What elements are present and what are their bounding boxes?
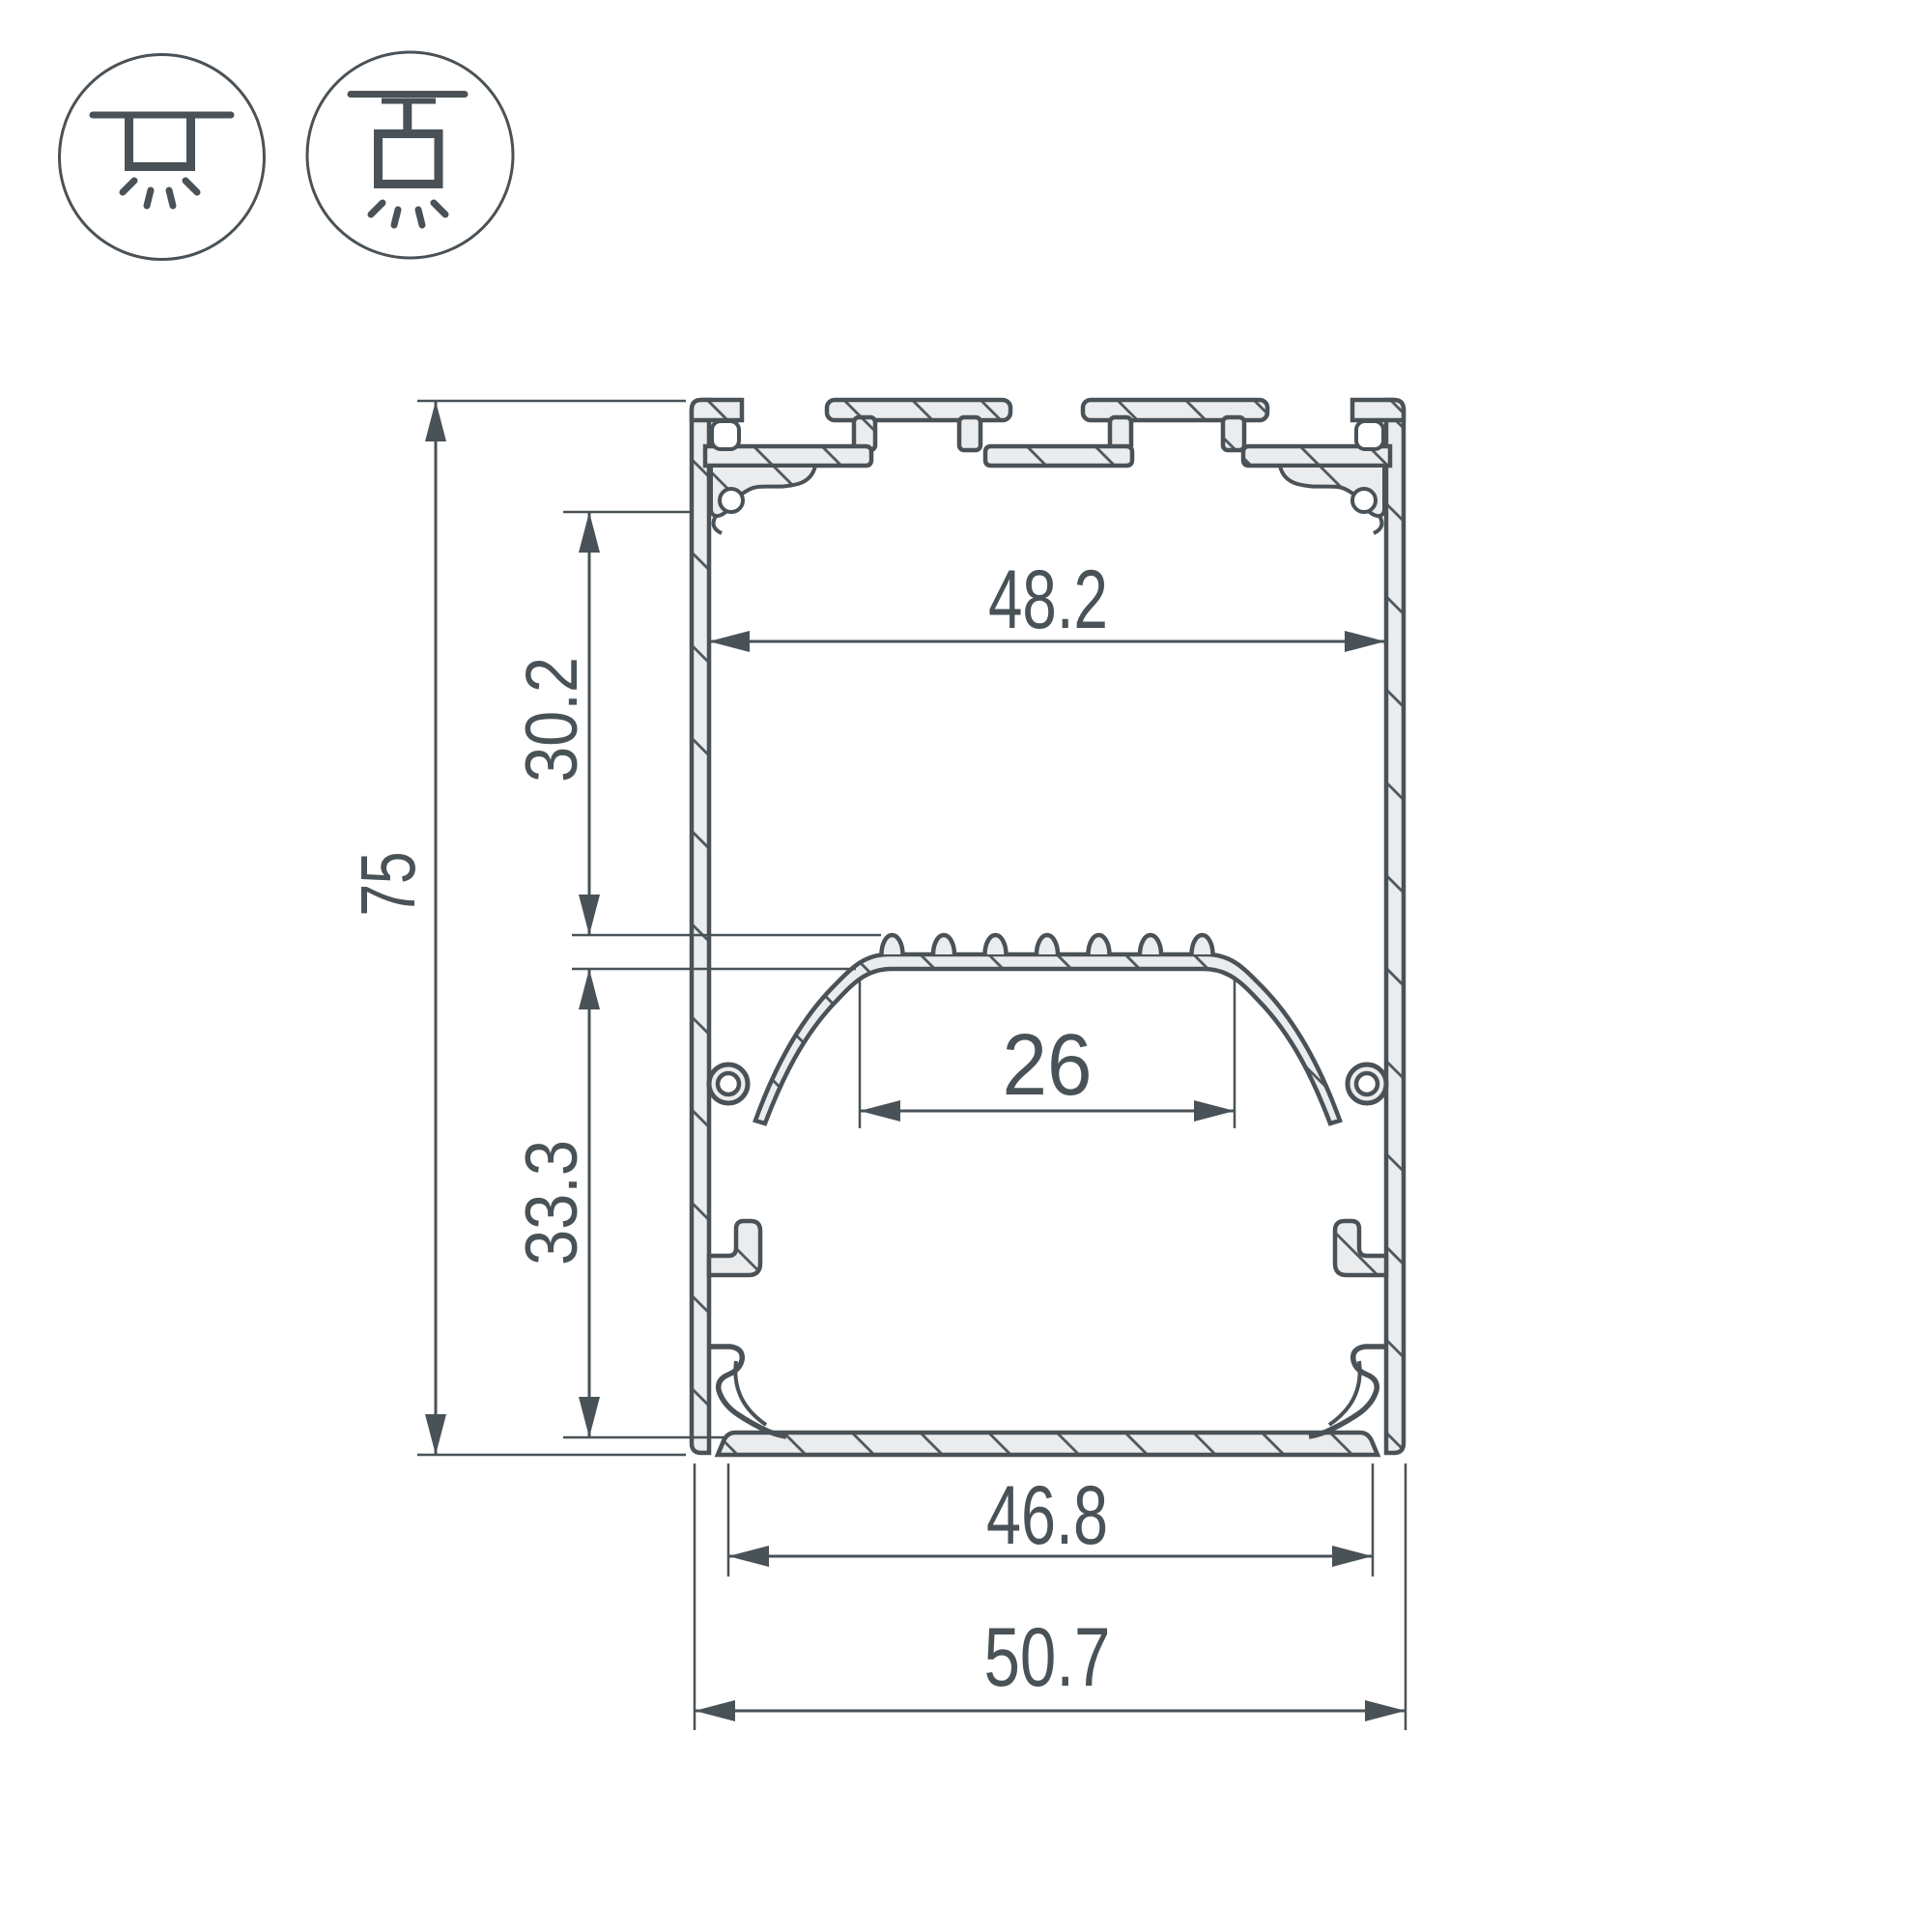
svg-text:30.2: 30.2 [511, 657, 593, 782]
svg-text:50.7: 50.7 [984, 1611, 1111, 1704]
svg-text:48.2: 48.2 [988, 554, 1108, 646]
svg-text:75: 75 [345, 852, 431, 917]
svg-text:26: 26 [1003, 1017, 1093, 1114]
svg-text:33.3: 33.3 [511, 1140, 593, 1265]
svg-text:46.8: 46.8 [986, 1469, 1108, 1562]
